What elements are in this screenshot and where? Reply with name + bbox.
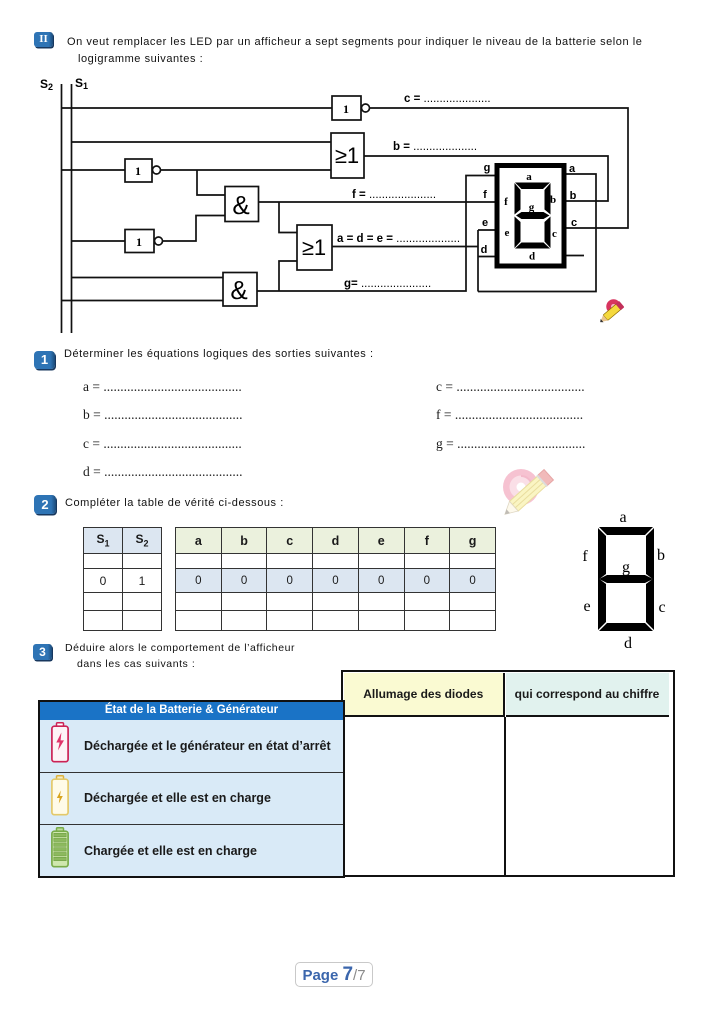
- svg-text:e: e: [505, 227, 510, 239]
- svg-text:&: &: [230, 275, 247, 305]
- svg-text:c: c: [571, 217, 577, 229]
- svg-text:f: f: [483, 189, 487, 201]
- svg-text:f: f: [582, 548, 588, 565]
- svg-text:g: g: [484, 162, 491, 174]
- svg-text:b = ....................: b = ....................: [393, 141, 477, 153]
- svg-text:d: d: [624, 635, 632, 652]
- svg-text:e: e: [583, 598, 590, 615]
- svg-text:c = .....................: c = .....................: [404, 93, 491, 105]
- svg-text:S1: S1: [75, 76, 88, 91]
- svg-text:≥1: ≥1: [335, 143, 359, 168]
- svg-text:c: c: [552, 228, 557, 240]
- svg-text:g= ......................: g= ......................: [344, 278, 431, 290]
- svg-text:f: f: [504, 196, 508, 208]
- svg-text:1: 1: [135, 164, 141, 178]
- svg-text:≥1: ≥1: [302, 235, 326, 260]
- svg-text:&: &: [232, 190, 249, 220]
- svg-text:b: b: [570, 190, 577, 202]
- svg-text:c: c: [658, 599, 665, 616]
- svg-text:b: b: [550, 194, 556, 206]
- svg-text:d: d: [481, 244, 488, 256]
- svg-text:a: a: [569, 163, 576, 175]
- svg-text:f = .....................: f = .....................: [352, 189, 436, 201]
- svg-text:a = d = e = ..................: a = d = e = ....................: [337, 233, 460, 245]
- svg-text:1: 1: [343, 102, 349, 116]
- svg-text:d: d: [529, 251, 535, 263]
- svg-text:b: b: [657, 547, 665, 564]
- svg-text:g: g: [622, 559, 630, 576]
- svg-text:a: a: [619, 509, 626, 526]
- svg-text:g: g: [529, 202, 535, 214]
- svg-text:1: 1: [136, 235, 142, 249]
- svg-text:a: a: [526, 171, 532, 183]
- svg-text:e: e: [482, 217, 488, 229]
- svg-text:S2: S2: [40, 77, 53, 92]
